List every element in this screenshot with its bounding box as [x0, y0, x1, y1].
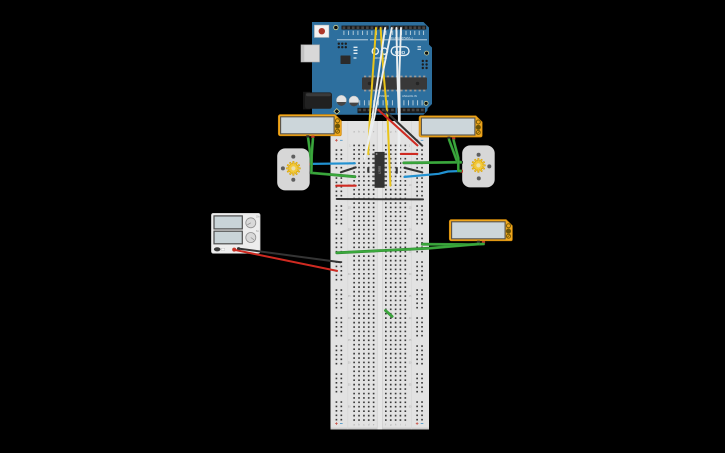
svg-text:POWER: POWER — [379, 94, 389, 98]
svg-text:L293D: L293D — [378, 166, 382, 174]
svg-text:ANALOG IN: ANALOG IN — [402, 94, 417, 98]
svg-text:5A: 5A — [256, 230, 259, 233]
